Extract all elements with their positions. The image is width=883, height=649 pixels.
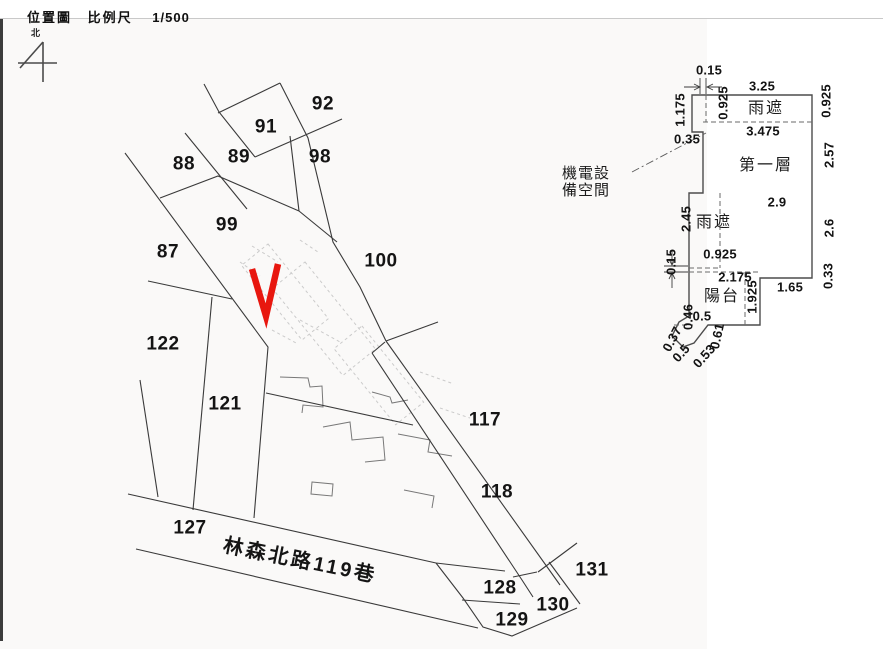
dimension-label: 3.25 — [749, 80, 775, 93]
dimension-label: 3.475 — [746, 125, 780, 138]
mech-space-note-line2: 備空間 — [562, 183, 610, 200]
mech-space-note: 機電設 備空間 — [562, 166, 610, 199]
room-label: 雨遮 — [748, 101, 784, 117]
dimension-label: 0.33 — [822, 263, 835, 289]
dimension-label: 0.35 — [674, 133, 700, 146]
dimension-label: 0.925 — [703, 248, 737, 261]
dimension-label: 0.15 — [665, 249, 678, 275]
site-plan-page: 位置圖 比例尺 1/500 北 — [0, 0, 883, 649]
dimension-label: 0.925 — [820, 84, 833, 118]
room-label: 第一層 — [739, 158, 793, 174]
room-label: 雨遮 — [696, 215, 732, 231]
room-label: 陽台 — [704, 289, 740, 305]
dimension-label: 1.65 — [777, 281, 803, 294]
dimension-label: 1.925 — [746, 280, 759, 314]
dimension-label: 2.9 — [768, 196, 787, 209]
floor-plan-label-layer: 0.153.250.9250.9251.1753.4750.352.572.92… — [0, 0, 883, 649]
dimension-label: 0.5 — [693, 310, 712, 323]
dimension-label: 2.6 — [823, 219, 836, 238]
dimension-label: 2.57 — [823, 142, 836, 168]
dimension-label: 0.925 — [717, 86, 730, 120]
dimension-label: 2.45 — [680, 206, 693, 232]
dimension-label: 0.61 — [708, 322, 726, 350]
dimension-label: 1.175 — [674, 93, 687, 127]
dimension-label: 0.15 — [696, 64, 722, 77]
mech-space-note-line1: 機電設 — [562, 166, 610, 183]
